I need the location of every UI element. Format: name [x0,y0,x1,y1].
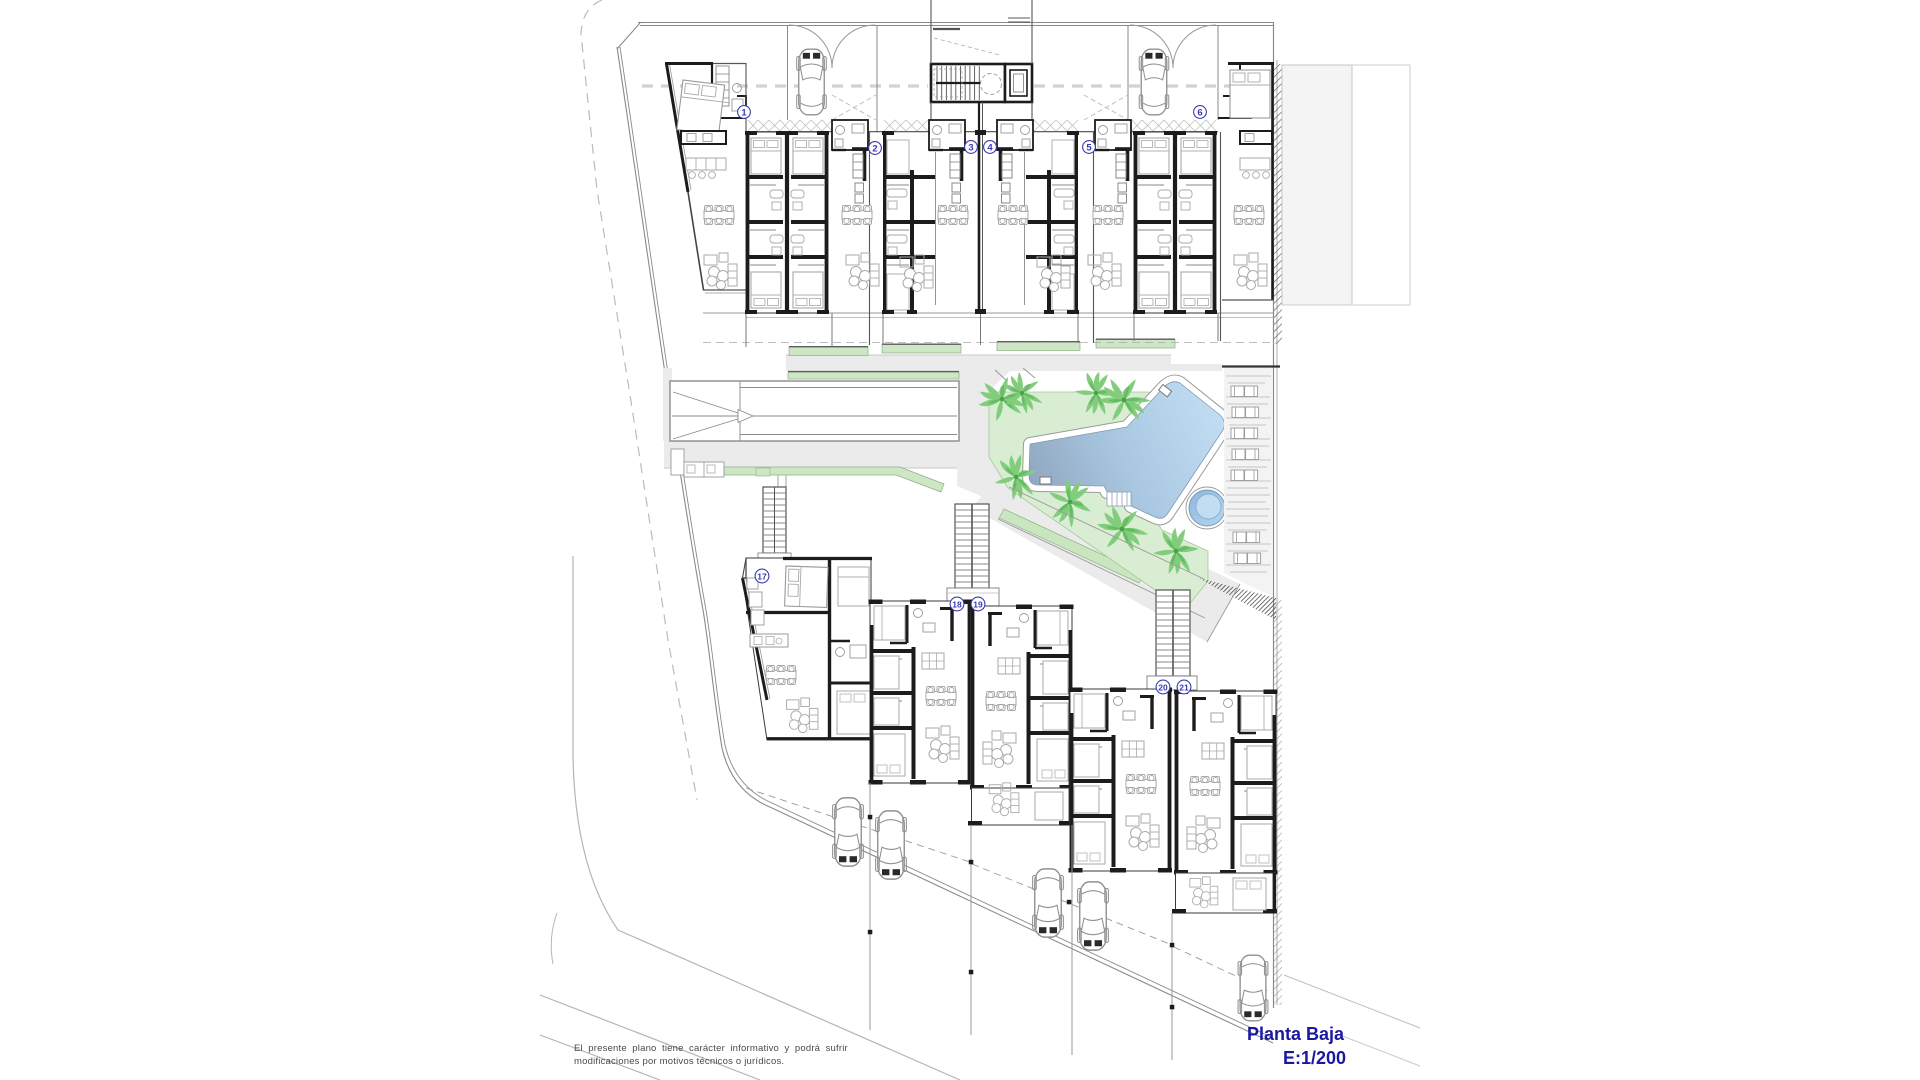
svg-text:E:1/200: E:1/200 [1283,1048,1346,1068]
svg-text:19: 19 [973,599,983,609]
svg-text:4: 4 [987,142,993,153]
svg-text:17: 17 [757,571,767,581]
svg-text:18: 18 [952,599,962,609]
svg-text:6: 6 [1197,107,1202,118]
svg-text:modificaciones por motivos téc: modificaciones por motivos técnicos o ju… [574,1056,784,1067]
svg-text:21: 21 [1179,682,1189,692]
svg-text:5: 5 [1086,142,1092,153]
svg-text:El presente plano tiene caráct: El presente plano tiene carácter informa… [574,1043,848,1054]
svg-text:3: 3 [968,142,973,153]
svg-text:2: 2 [872,143,877,154]
svg-text:Planta Baja: Planta Baja [1247,1024,1345,1044]
svg-text:1: 1 [741,107,747,118]
svg-text:20: 20 [1158,682,1168,692]
